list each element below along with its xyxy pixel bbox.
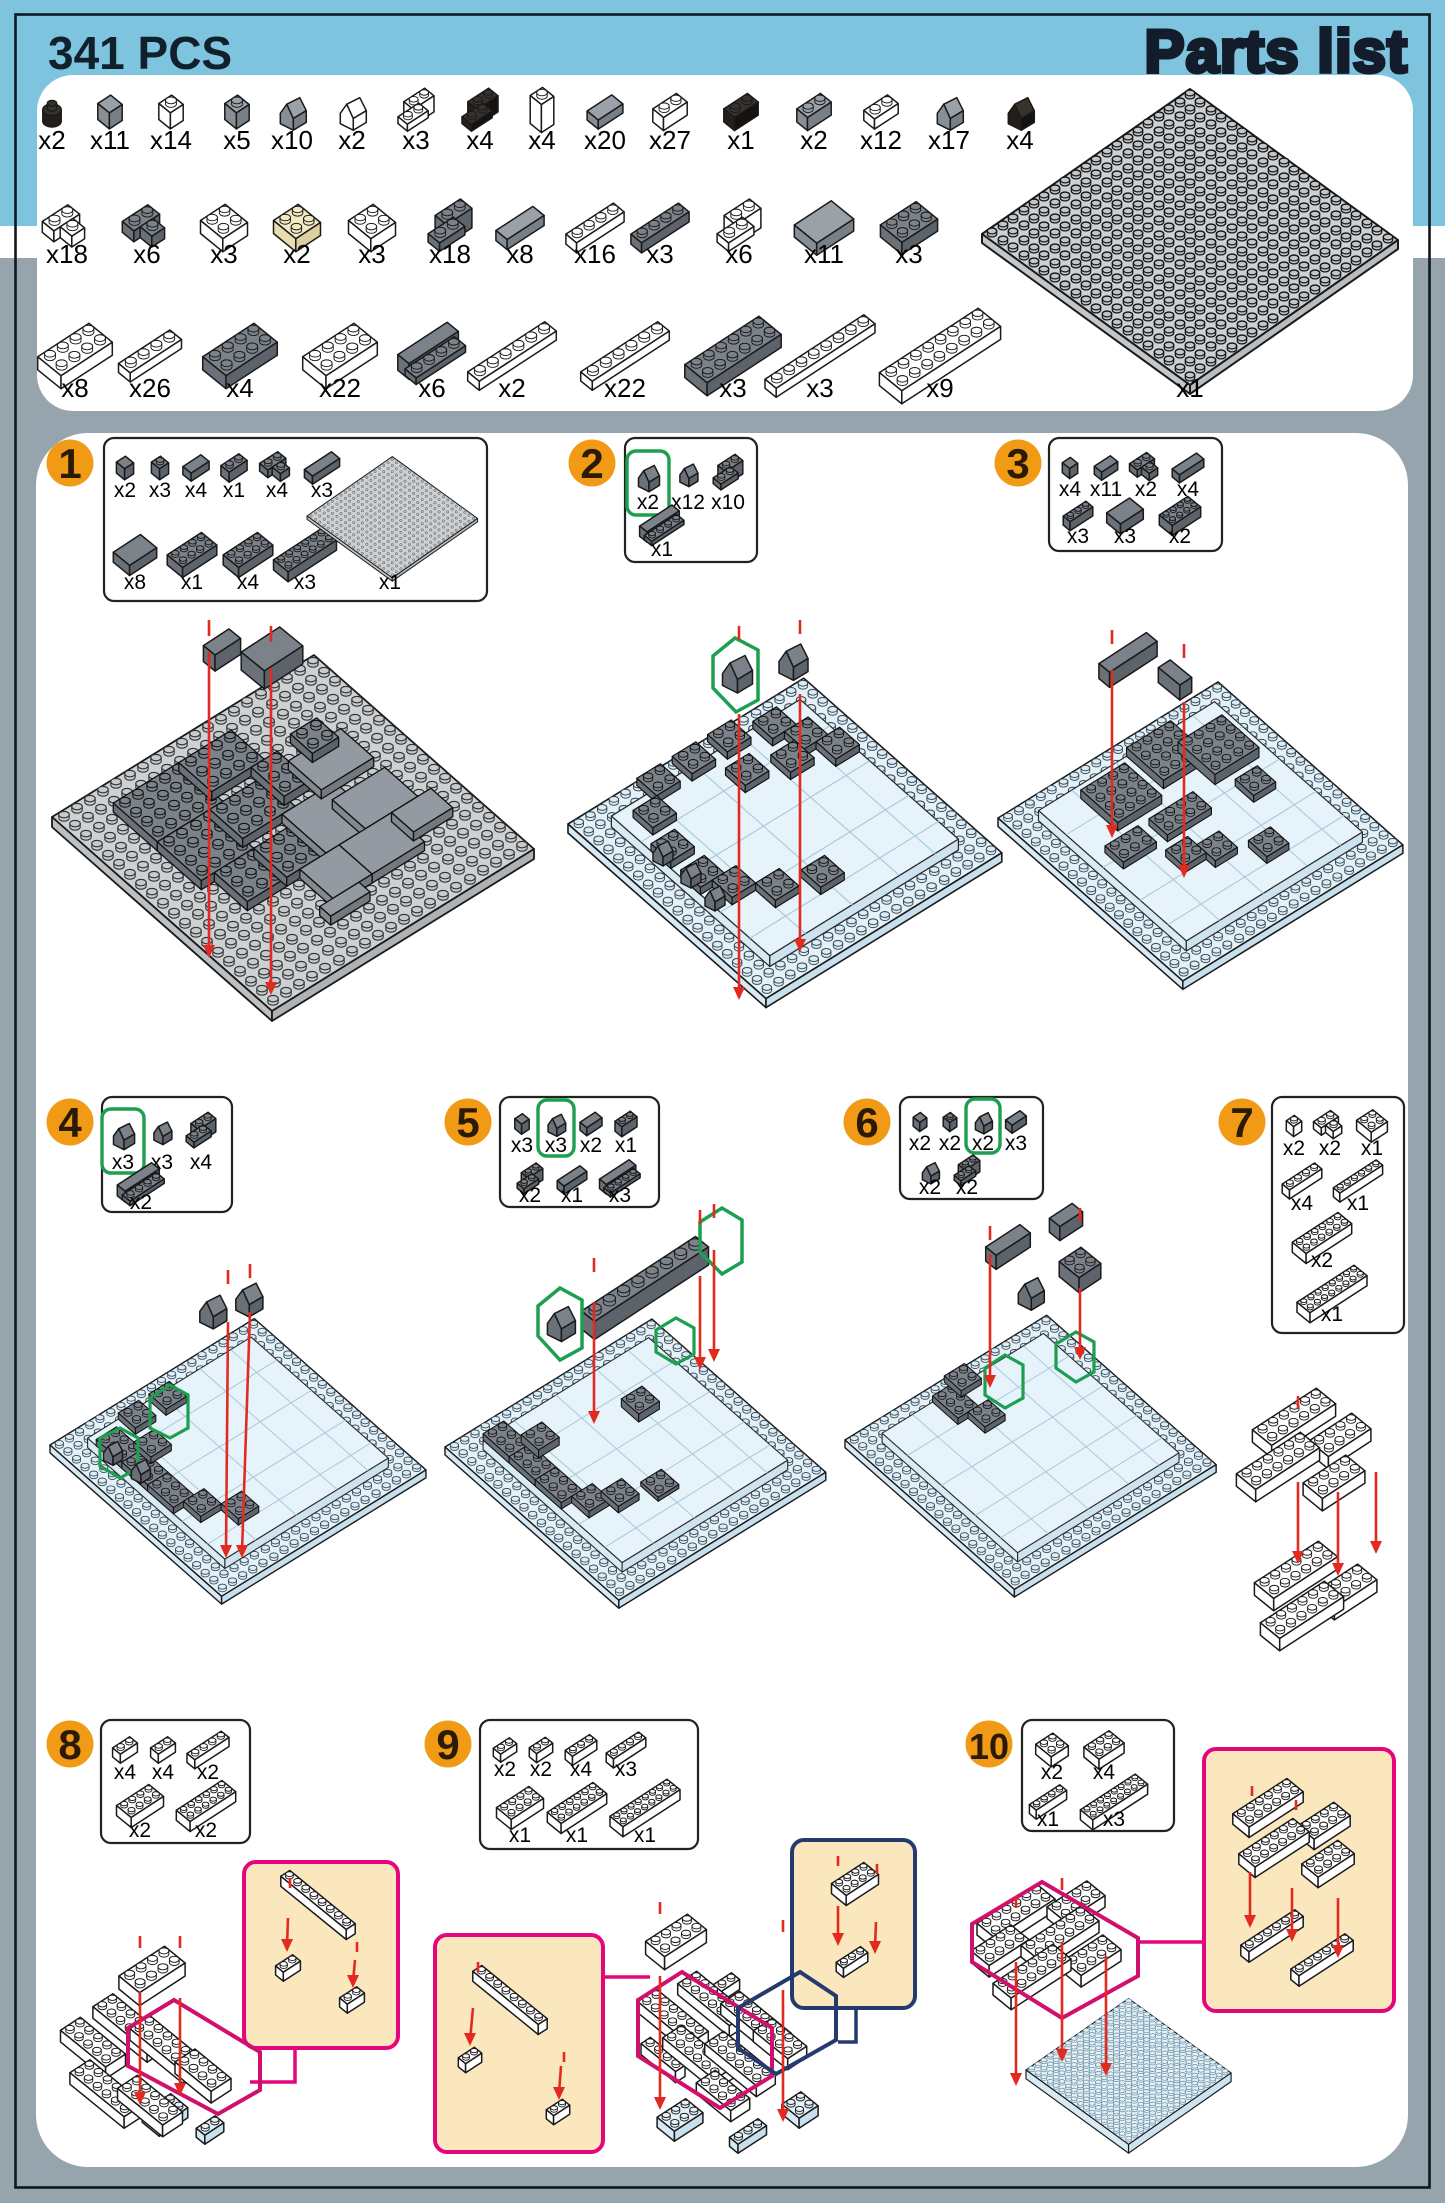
- svg-text:x1: x1: [1037, 1808, 1059, 1831]
- svg-text:x2: x2: [939, 1132, 961, 1155]
- svg-text:x8: x8: [61, 373, 88, 403]
- svg-text:x2: x2: [1169, 525, 1191, 548]
- svg-text:x4: x4: [1006, 125, 1033, 155]
- svg-text:x3: x3: [646, 239, 673, 269]
- svg-text:x3: x3: [1005, 1132, 1027, 1155]
- svg-text:x22: x22: [604, 373, 646, 403]
- svg-text:x3: x3: [511, 1134, 533, 1157]
- svg-text:4: 4: [58, 1099, 82, 1146]
- svg-text:x2: x2: [909, 1132, 931, 1155]
- svg-text:x22: x22: [319, 373, 361, 403]
- svg-text:x2: x2: [956, 1176, 978, 1199]
- svg-text:x2: x2: [580, 1134, 602, 1157]
- svg-text:x4: x4: [190, 1151, 213, 1174]
- svg-text:x3: x3: [402, 125, 429, 155]
- svg-text:x4: x4: [152, 1761, 175, 1784]
- svg-text:x6: x6: [725, 239, 752, 269]
- svg-text:7: 7: [1230, 1099, 1253, 1146]
- svg-text:6: 6: [855, 1099, 878, 1146]
- svg-text:x1: x1: [1321, 1303, 1343, 1326]
- svg-text:x1: x1: [566, 1824, 588, 1847]
- svg-text:x1: x1: [223, 479, 245, 502]
- svg-text:x2: x2: [129, 1819, 151, 1842]
- svg-text:x4: x4: [114, 1761, 137, 1784]
- svg-text:5: 5: [456, 1099, 479, 1146]
- svg-text:x1: x1: [615, 1134, 637, 1157]
- svg-text:x4: x4: [466, 125, 493, 155]
- svg-text:x4: x4: [570, 1758, 593, 1781]
- svg-text:x10: x10: [271, 125, 313, 155]
- svg-text:2: 2: [580, 440, 603, 487]
- svg-text:x2: x2: [197, 1761, 219, 1784]
- svg-text:x16: x16: [574, 239, 616, 269]
- svg-text:x2: x2: [494, 1758, 516, 1781]
- svg-text:x18: x18: [46, 239, 88, 269]
- svg-text:x1: x1: [379, 571, 401, 594]
- svg-text:x4: x4: [226, 373, 253, 403]
- svg-text:x8: x8: [506, 239, 533, 269]
- svg-text:x3: x3: [358, 239, 385, 269]
- svg-text:x4: x4: [266, 479, 289, 502]
- svg-text:x9: x9: [926, 373, 953, 403]
- svg-text:x4: x4: [237, 571, 260, 594]
- svg-text:x3: x3: [294, 571, 316, 594]
- svg-text:x3: x3: [615, 1758, 637, 1781]
- svg-text:x11: x11: [804, 239, 844, 269]
- svg-text:x2: x2: [1311, 1249, 1333, 1272]
- svg-text:x2: x2: [38, 125, 65, 155]
- svg-text:x2: x2: [919, 1176, 941, 1199]
- svg-text:x5: x5: [223, 125, 250, 155]
- svg-text:x3: x3: [806, 373, 833, 403]
- svg-text:x2: x2: [114, 479, 136, 502]
- svg-text:x18: x18: [429, 239, 471, 269]
- svg-text:x2: x2: [519, 1184, 541, 1207]
- svg-text:x1: x1: [509, 1824, 531, 1847]
- svg-text:x3: x3: [1103, 1808, 1125, 1831]
- svg-text:x1: x1: [1176, 373, 1203, 403]
- svg-text:x3: x3: [149, 479, 171, 502]
- svg-text:x10: x10: [711, 491, 745, 514]
- svg-text:x27: x27: [649, 125, 691, 155]
- svg-text:x3: x3: [1114, 525, 1136, 548]
- svg-text:x3: x3: [719, 373, 746, 403]
- svg-text:x1: x1: [727, 125, 754, 155]
- svg-text:x3: x3: [112, 1151, 134, 1174]
- svg-text:x4: x4: [1291, 1192, 1314, 1215]
- svg-text:x4: x4: [528, 125, 555, 155]
- svg-text:341 PCS: 341 PCS: [48, 27, 232, 79]
- svg-text:x2: x2: [1319, 1137, 1341, 1160]
- svg-text:x1: x1: [634, 1824, 656, 1847]
- svg-text:x2: x2: [195, 1819, 217, 1842]
- svg-text:10: 10: [969, 1726, 1009, 1767]
- svg-text:x4: x4: [1059, 478, 1082, 501]
- svg-text:x26: x26: [129, 373, 171, 403]
- svg-text:1: 1: [58, 440, 81, 487]
- svg-text:x2: x2: [800, 125, 827, 155]
- svg-text:8: 8: [58, 1721, 81, 1768]
- svg-text:x2: x2: [1283, 1137, 1305, 1160]
- svg-text:x1: x1: [1361, 1137, 1383, 1160]
- svg-text:x11: x11: [1090, 478, 1122, 501]
- svg-text:x11: x11: [90, 125, 130, 155]
- svg-text:x14: x14: [150, 125, 192, 155]
- svg-text:x3: x3: [545, 1134, 567, 1157]
- svg-text:x4: x4: [1093, 1761, 1116, 1784]
- svg-text:x2: x2: [498, 373, 525, 403]
- svg-text:x3: x3: [1067, 525, 1089, 548]
- svg-text:3: 3: [1006, 440, 1029, 487]
- svg-text:x2: x2: [1041, 1761, 1063, 1784]
- svg-text:x20: x20: [584, 125, 626, 155]
- svg-text:x3: x3: [311, 479, 333, 502]
- svg-text:x17: x17: [928, 125, 970, 155]
- svg-text:x6: x6: [418, 373, 445, 403]
- svg-text:x4: x4: [185, 479, 208, 502]
- svg-text:x1: x1: [651, 538, 673, 561]
- svg-text:x1: x1: [181, 571, 203, 594]
- svg-text:x3: x3: [609, 1184, 631, 1207]
- svg-text:x2: x2: [338, 125, 365, 155]
- svg-text:x2: x2: [637, 491, 659, 514]
- svg-text:Parts list: Parts list: [1145, 18, 1408, 85]
- svg-text:x1: x1: [561, 1184, 583, 1207]
- svg-text:9: 9: [436, 1721, 459, 1768]
- svg-text:x3: x3: [210, 239, 237, 269]
- svg-text:x2: x2: [972, 1132, 994, 1155]
- svg-text:x6: x6: [133, 239, 160, 269]
- svg-text:x3: x3: [895, 239, 922, 269]
- svg-text:x2: x2: [1135, 478, 1157, 501]
- svg-text:x2: x2: [130, 1191, 152, 1214]
- svg-text:x2: x2: [283, 239, 310, 269]
- svg-text:x2: x2: [530, 1758, 552, 1781]
- svg-text:x1: x1: [1347, 1192, 1369, 1215]
- svg-text:x8: x8: [124, 571, 146, 594]
- svg-text:x12: x12: [860, 125, 902, 155]
